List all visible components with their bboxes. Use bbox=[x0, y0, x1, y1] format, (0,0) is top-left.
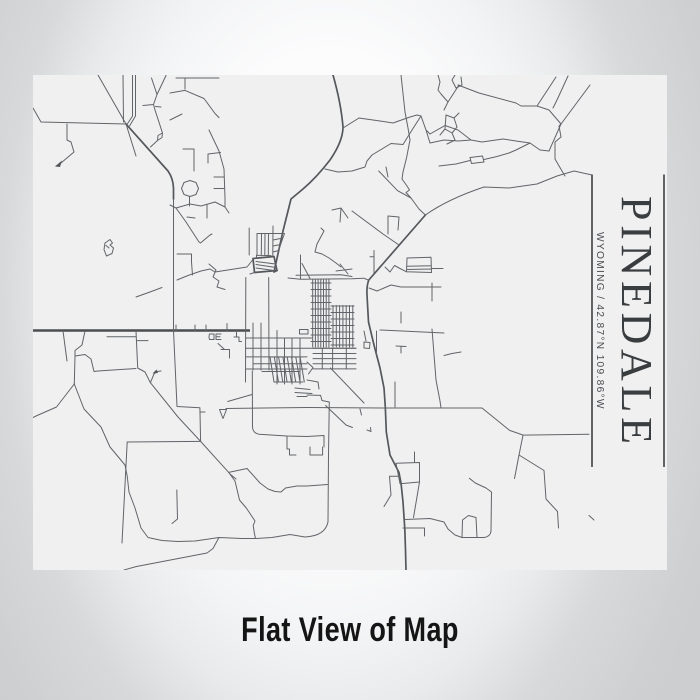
svg-text:WYOMING / 42.87°N 109.86°W: WYOMING / 42.87°N 109.86°W bbox=[594, 232, 605, 410]
svg-text:PINEDALE: PINEDALE bbox=[612, 196, 661, 449]
